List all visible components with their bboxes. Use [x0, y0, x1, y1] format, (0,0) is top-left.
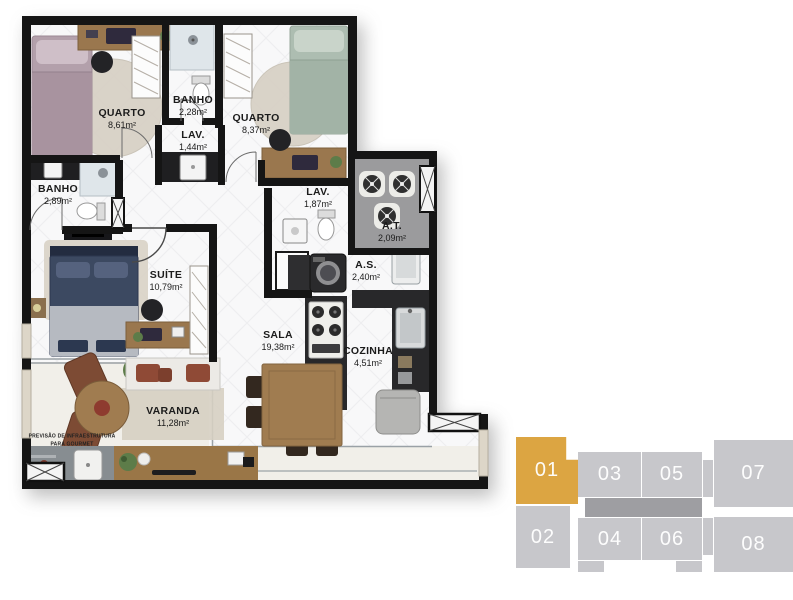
unit-04-label: 04	[598, 528, 622, 551]
gourmet-note: PREVISÃO DE INFRAESTRUTURA PARA GOURMET	[29, 434, 116, 449]
office-chair	[141, 299, 163, 321]
washing-machine	[288, 254, 346, 292]
vent-fan	[389, 171, 415, 197]
screenshot: QUARTO8,61m² BANHO2,28m² LAV.1,44m² QUAR…	[0, 0, 793, 600]
shower	[80, 162, 118, 196]
unit-01[interactable]: 01	[516, 437, 578, 504]
wardrobe	[190, 266, 208, 354]
unit-03[interactable]: 03	[578, 452, 642, 497]
room-label-lavabo-1: LAV.1,44m²	[179, 129, 207, 153]
room-label-lavabo-2: LAV.1,87m²	[304, 186, 332, 210]
desk	[126, 322, 196, 348]
room-label-as: A.S.2,40m²	[352, 259, 380, 283]
desk	[262, 148, 346, 178]
unit-02-label: 02	[531, 526, 555, 549]
cube-sink	[283, 219, 307, 243]
bed-single	[32, 36, 92, 166]
unit-07[interactable]: 07	[714, 440, 793, 507]
vent-fan	[359, 171, 385, 197]
room-label-at: A.T.2,09m²	[378, 220, 406, 244]
room-label-banho-2: BANHO2,89m²	[38, 183, 78, 207]
office-chair	[91, 51, 113, 73]
sofa-bench	[126, 358, 220, 390]
unit-04[interactable]: 04	[578, 518, 642, 560]
corridor	[585, 495, 702, 518]
toilet	[77, 203, 105, 220]
toilet	[318, 210, 335, 240]
room-label-suite: SUÍTE10,79m²	[149, 269, 182, 293]
fridge	[376, 390, 420, 434]
unit-02[interactable]: 02	[516, 506, 570, 568]
unit-06-label: 06	[660, 528, 684, 551]
unit-08-label: 08	[741, 533, 765, 556]
unit-05[interactable]: 05	[642, 452, 702, 497]
bed-double	[50, 246, 138, 356]
gourmet-note-line1: PREVISÃO DE INFRAESTRUTURA	[29, 434, 116, 442]
vanity-sink	[158, 152, 224, 182]
round-table	[75, 381, 129, 435]
room-label-sala: SALA19,38m²	[261, 329, 294, 353]
room-label-varanda: VARANDA11,28m²	[146, 405, 200, 429]
wardrobe	[224, 34, 252, 98]
unit-01-label: 01	[535, 459, 559, 482]
unit-07-label: 07	[741, 462, 765, 485]
gourmet-note-line2: PARA GOURMET	[29, 441, 116, 449]
unit-06[interactable]: 06	[642, 518, 702, 560]
unit-03-label: 03	[598, 463, 622, 486]
unit-map-connector	[578, 558, 604, 572]
unit-08[interactable]: 08	[714, 517, 793, 572]
room-label-cozinha: COZINHA4,51m²	[343, 345, 393, 369]
unit-map-connector	[676, 558, 702, 572]
bed-single	[290, 26, 348, 134]
floor-plan	[0, 0, 500, 500]
unit-map-connector	[702, 460, 714, 497]
room-label-quarto-1: QUARTO8,61m²	[98, 107, 145, 131]
room-label-banho-1: BANHO2,28m²	[173, 94, 213, 118]
unit-05-label: 05	[660, 463, 684, 486]
unit-map-connector	[702, 518, 714, 555]
wardrobe	[132, 36, 160, 98]
room-label-quarto-2: QUARTO8,37m²	[232, 112, 279, 136]
shower	[170, 24, 214, 70]
